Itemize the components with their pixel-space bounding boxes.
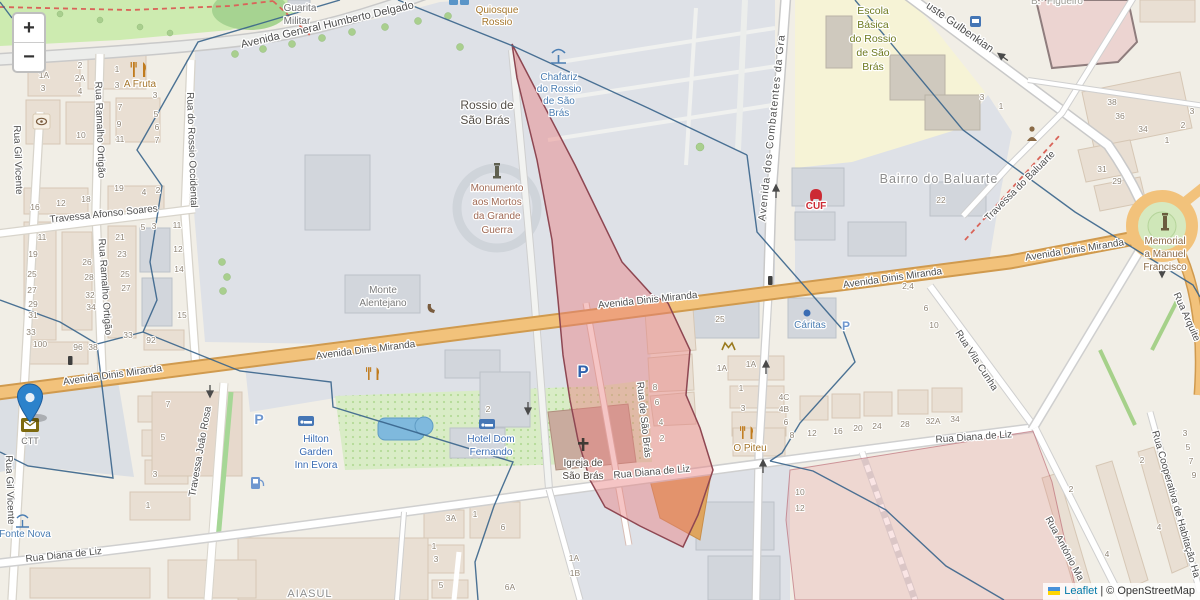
house-number: 8 [790,430,795,440]
house-number: 16 [30,202,40,212]
house-number: 10 [76,130,86,140]
poi-igreja-2: São Brás [562,471,603,482]
house-number: 1 [146,500,151,510]
house-number: 4 [78,86,83,96]
house-number: 2 [1181,120,1186,130]
house-number: 2 [486,404,491,414]
poi-monumento-4: Guerra [481,225,513,236]
osm-attribution[interactable]: © OpenStreetMap [1106,585,1195,597]
house-number: 33 [26,327,36,337]
house-number: 15 [177,310,187,320]
house-number: 11 [173,220,182,230]
poi-ctt: CTT [21,436,39,446]
house-number: 2 [156,185,161,195]
house-number: 3 [1183,428,1188,438]
poi-monte-1: Monte [369,285,397,296]
house-number: 1 [739,383,744,393]
leaflet-link[interactable]: Leaflet [1064,585,1097,597]
house-number: 2 [660,433,665,443]
house-number: 19 [28,249,38,259]
house-number: 7 [155,135,160,145]
house-number: 3 [434,554,439,564]
house-number: 1 [432,541,437,551]
bus-stop-icon [970,16,981,27]
house-number: 26 [82,257,92,267]
poi-monumento-2: aos Mortos [472,197,521,208]
attribution-separator: | [1100,585,1103,597]
house-number: 1B [570,568,581,578]
poi-fonte-nova: Fonte Nova [0,529,51,540]
house-number: 6 [501,522,506,532]
house-number: 5 [154,109,159,119]
house-number: 12 [807,428,817,438]
house-number: 5 [141,222,146,232]
house-number: 25 [715,314,725,324]
poi-monte-2: Alentejano [359,298,407,309]
house-number: 3 [741,403,746,413]
house-number: 6 [655,397,660,407]
place-rossio-2: São Brás [460,113,509,127]
house-number: 2 [1069,484,1074,494]
house-number: 9 [117,119,122,129]
house-number: 34 [950,414,960,424]
house-number: 5 [439,580,444,590]
poi-chafariz-3: de São [543,96,575,107]
house-number: 2 [78,60,83,70]
place-bairro-baluarte: Bairro do Baluarte [880,172,999,186]
house-number: 28 [84,272,94,282]
house-number: 3 [41,83,46,93]
attribution-bar: Leaflet|© OpenStreetMap [1043,583,1200,600]
poi-monumento-3: da Grande [473,211,521,222]
house-number: 31 [1097,164,1107,174]
house-number: 38 [1107,97,1117,107]
poi-escola-3: do Rossio [850,33,897,45]
house-number: 27 [121,283,131,293]
hotel-bed-icon [298,416,314,426]
poi-chafariz-1: Chafariz [540,72,577,83]
parking-p-3: P [842,319,850,333]
house-number: 19 [114,183,124,193]
house-number: 34 [1138,124,1148,134]
house-number: 1 [473,509,478,519]
house-number: 4 [659,417,664,427]
house-number: 7 [118,102,123,112]
place-rossio-1: Rossio de [460,98,514,112]
poi-hotel-df-2: Fernando [470,447,513,458]
poi-igreja-1: Igreja de [564,458,603,469]
house-number: 4C [779,392,790,402]
house-number: 1A [569,553,580,563]
house-number: 1A [717,363,728,373]
house-number: 7 [166,399,171,409]
place-aiasul: AIASUL [287,588,332,600]
house-number: 28 [900,419,910,429]
leaflet-map[interactable]: Avenida General Humberto DelgadoTravessa… [0,0,1200,600]
house-number: 92 [146,335,156,345]
zoom-control: + − [12,12,46,73]
poi-chafariz-4: Brás [549,108,570,119]
house-number: 3 [153,469,158,479]
ukraine-flag-icon [1048,587,1060,595]
house-number: 1A [746,359,757,369]
parking-p-2: P [254,411,263,427]
poi-a-fruta: A Fruta [124,79,157,90]
house-number: 11 [116,134,125,144]
house-number: 10 [795,487,805,497]
house-number: 1 [999,101,1004,111]
house-number: 6A [505,582,516,592]
poi-monumento-1: Monumento [471,183,524,194]
house-number: 2 [1140,455,1145,465]
house-number: 6 [155,122,160,132]
poi-o-piteu: O Piteu [733,443,766,454]
house-number: 25 [120,269,130,279]
house-number: 23 [117,249,127,259]
house-number: 7 [1189,456,1194,466]
house-number: 27 [27,285,37,295]
house-number: 2A [75,73,86,83]
house-number: 12 [173,244,183,254]
map-canvas[interactable]: Avenida General Humberto DelgadoTravessa… [0,0,1200,600]
house-number: 3 [980,92,985,102]
house-number: 2,4 [902,281,914,291]
house-number: 3A [446,513,457,523]
poi-chafariz-2: do Rossio [537,84,582,95]
poi-cuf: CUF [806,201,827,212]
poi-guarita-1: Guarita [284,3,317,14]
house-number: 16 [833,426,843,436]
poi-escola-1: Escola [857,5,889,17]
house-number: 24 [872,421,882,431]
house-number: 96 [73,342,83,352]
house-number: 36 [1115,111,1125,121]
poi-escola-2: Básica [857,19,889,31]
optician-eye-icon [33,114,50,129]
house-number: 4 [1105,549,1110,559]
poi-hilton-2: Garden [299,447,332,458]
house-number: 3 [115,80,120,90]
house-number: 6 [784,417,789,427]
poi-hilton-3: Inn Evora [295,460,338,471]
poi-memorial-1: Memorial [1144,236,1185,247]
poi-hilton-1: Hilton [303,434,329,445]
house-number: 4 [142,187,147,197]
house-number: 10 [929,320,939,330]
house-number: 29 [28,299,38,309]
house-number: 32 [85,290,95,300]
zoom-in-button[interactable]: + [14,14,44,43]
poi-memorial-3: Francisco [1143,262,1187,273]
poi-quiosque-2: Rossio [482,17,513,28]
house-number: 4B [779,404,790,414]
house-number: 21 [115,232,125,242]
poi-memorial-2: a Manuel [1144,249,1185,260]
house-number: 100 [33,339,47,349]
house-number: 14 [174,264,184,274]
house-number: 34 [86,302,96,312]
poi-escola-5: Brás [862,61,884,73]
house-number: 18 [81,194,91,204]
house-number: 3 [152,221,157,231]
poi-guarita-2: Militar [284,16,311,27]
house-number: 12 [56,198,66,208]
poi-escola-4: de São [856,47,889,59]
caritas-icon [804,310,811,317]
house-number: 9 [1192,470,1197,480]
house-number: 31 [28,310,38,320]
house-number: 3 [1190,106,1195,116]
house-number: 5 [161,432,166,442]
house-number: 5 [1186,442,1191,452]
house-number: 11 [38,232,47,242]
house-number: 6 [924,303,929,313]
zoom-out-button[interactable]: − [14,43,44,71]
house-number: 22 [936,195,946,205]
hotel-bed-icon [479,419,495,429]
house-number: 32A [925,416,940,426]
house-number: 8 [653,382,658,392]
parking-p-1: P [577,362,588,381]
house-number: 4 [1157,522,1162,532]
house-number: 38 [88,342,98,352]
house-number: 20 [853,423,863,433]
house-number: 1 [1165,135,1170,145]
house-number: 25 [27,269,37,279]
house-number: 29 [1112,176,1122,186]
house-number: 12 [795,503,805,513]
house-number: 1 [115,64,120,74]
poi-hotel-df-1: Hotel Dom [467,434,514,445]
poi-caritas: Cáritas [794,320,826,331]
place-bairro-figueiro: B.º Figueiro [1031,0,1083,7]
house-number: 3 [153,90,158,100]
house-number: 33 [123,330,133,340]
poi-quiosque-1: Quiosque [476,5,519,16]
